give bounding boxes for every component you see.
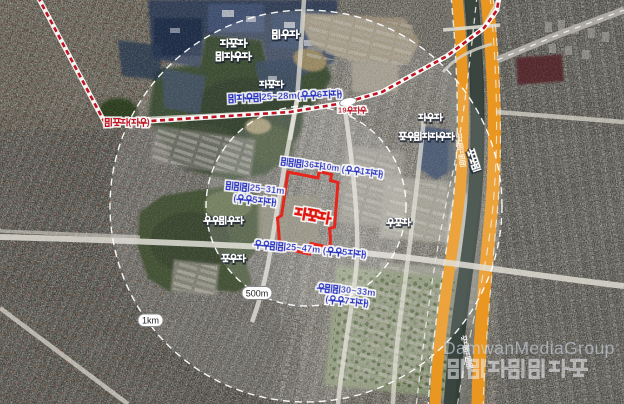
svg-text:25~28m(: 25~28m( (261, 91, 301, 104)
svg-text:6: 6 (317, 90, 323, 101)
svg-text:5: 5 (342, 247, 348, 257)
svg-text:1km: 1km (142, 316, 159, 326)
svg-text:36: 36 (303, 159, 314, 170)
svg-text:500m: 500m (246, 289, 269, 299)
svg-text:): ) (339, 89, 343, 100)
svg-text:19: 19 (338, 106, 347, 115)
svg-text:): ) (147, 117, 150, 127)
svg-text:5: 5 (252, 195, 258, 205)
svg-text:7: 7 (344, 296, 350, 306)
svg-text:DamwanMediaGroup: DamwanMediaGroup (443, 338, 615, 358)
svg-text:(: ( (128, 117, 131, 127)
